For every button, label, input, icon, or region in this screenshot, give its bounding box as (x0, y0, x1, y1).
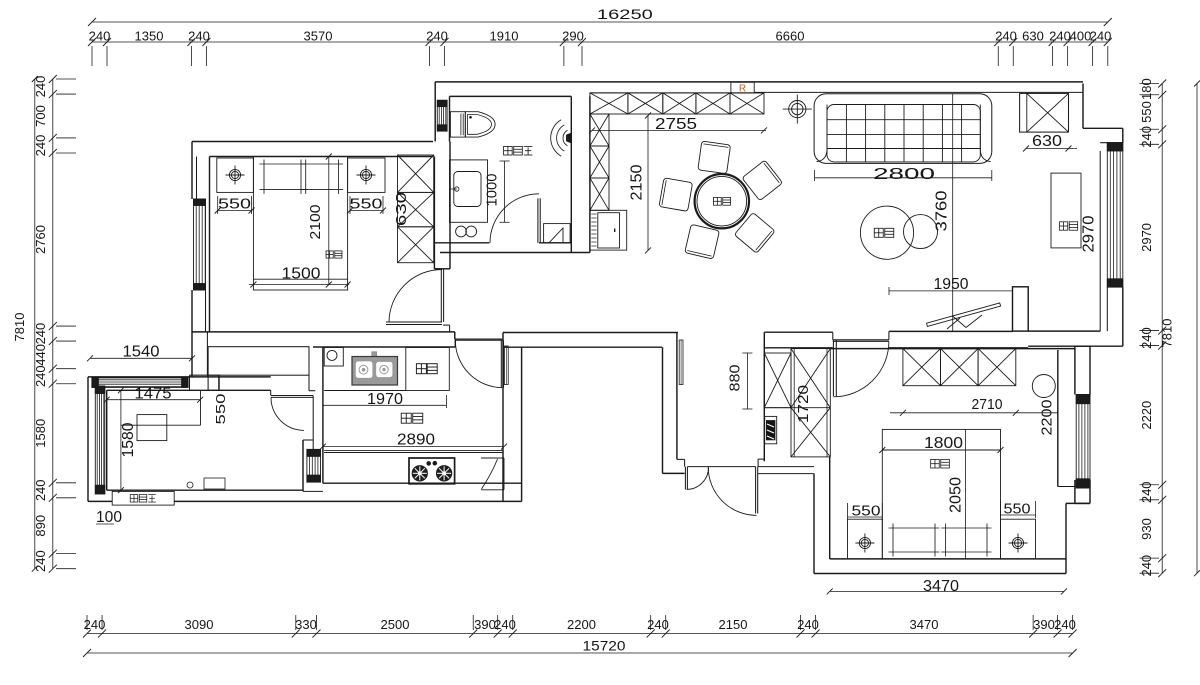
svg-text:240: 240 (33, 135, 48, 157)
svg-text:1000: 1000 (485, 174, 501, 207)
svg-text:290: 290 (562, 29, 584, 44)
svg-text:330: 330 (295, 617, 317, 632)
svg-text:1910: 1910 (490, 29, 519, 44)
svg-text:2710: 2710 (972, 396, 1003, 413)
svg-text:7810: 7810 (12, 313, 27, 342)
svg-text:240: 240 (84, 617, 106, 632)
svg-text:1500: 1500 (282, 266, 321, 283)
svg-text:2500: 2500 (381, 617, 410, 632)
svg-text:240: 240 (1139, 555, 1154, 577)
svg-text:630: 630 (394, 192, 410, 226)
svg-text:240: 240 (494, 617, 516, 632)
svg-text:400: 400 (1070, 29, 1092, 44)
svg-text:3470: 3470 (923, 578, 959, 595)
svg-text:240: 240 (995, 29, 1017, 44)
svg-text:15720: 15720 (583, 639, 626, 654)
svg-text:240: 240 (89, 29, 111, 44)
svg-text:2970: 2970 (1081, 215, 1098, 252)
svg-text:1720: 1720 (796, 385, 812, 423)
svg-text:2100: 2100 (308, 205, 324, 240)
svg-text:550: 550 (213, 394, 228, 425)
svg-text:240: 240 (1049, 29, 1071, 44)
svg-text:3470: 3470 (910, 617, 939, 632)
svg-text:2800: 2800 (873, 166, 935, 183)
svg-text:630: 630 (1022, 29, 1044, 44)
svg-text:2760: 2760 (33, 225, 48, 254)
svg-text:1540: 1540 (123, 344, 160, 361)
svg-text:880: 880 (728, 365, 744, 392)
svg-text:7810: 7810 (1160, 319, 1175, 348)
svg-text:1970: 1970 (367, 391, 403, 408)
svg-text:3570: 3570 (304, 29, 333, 44)
svg-text:1580: 1580 (120, 422, 137, 457)
svg-text:240: 240 (1054, 617, 1076, 632)
svg-text:240: 240 (1090, 29, 1112, 44)
svg-text:6660: 6660 (776, 29, 805, 44)
svg-text:550: 550 (1139, 101, 1154, 123)
svg-text:240: 240 (647, 617, 669, 632)
svg-text:2150: 2150 (719, 617, 748, 632)
svg-text:1475: 1475 (135, 386, 172, 403)
svg-text:180: 180 (1139, 78, 1154, 100)
svg-text:2150: 2150 (629, 164, 646, 200)
svg-text:2050: 2050 (948, 477, 965, 513)
svg-text:240: 240 (797, 617, 819, 632)
svg-text:240: 240 (1139, 327, 1154, 349)
svg-text:100: 100 (96, 509, 122, 526)
svg-text:240: 240 (188, 29, 210, 44)
svg-text:1350: 1350 (135, 29, 164, 44)
svg-text:930: 930 (1139, 518, 1154, 540)
svg-text:16250: 16250 (597, 6, 653, 22)
svg-text:2200: 2200 (1039, 400, 1056, 436)
svg-text:1950: 1950 (934, 276, 969, 293)
svg-text:630: 630 (1032, 133, 1062, 150)
svg-text:2970: 2970 (1139, 223, 1154, 252)
svg-text:3090: 3090 (185, 617, 214, 632)
svg-text:440: 440 (33, 344, 48, 366)
svg-text:2890: 2890 (397, 432, 435, 449)
svg-text:2200: 2200 (567, 617, 596, 632)
svg-text:240: 240 (33, 323, 48, 345)
svg-text:2220: 2220 (1139, 401, 1154, 430)
svg-text:390: 390 (474, 617, 496, 632)
svg-text:390: 390 (1033, 617, 1055, 632)
svg-text:890: 890 (33, 515, 48, 537)
svg-text:240: 240 (426, 29, 448, 44)
svg-text:240: 240 (33, 365, 48, 387)
svg-text:240: 240 (1139, 126, 1154, 148)
svg-text:1580: 1580 (33, 419, 48, 448)
svg-text:1800: 1800 (924, 435, 963, 452)
svg-text:240: 240 (33, 479, 48, 501)
svg-text:240: 240 (1139, 481, 1154, 503)
svg-text:700: 700 (33, 105, 48, 127)
